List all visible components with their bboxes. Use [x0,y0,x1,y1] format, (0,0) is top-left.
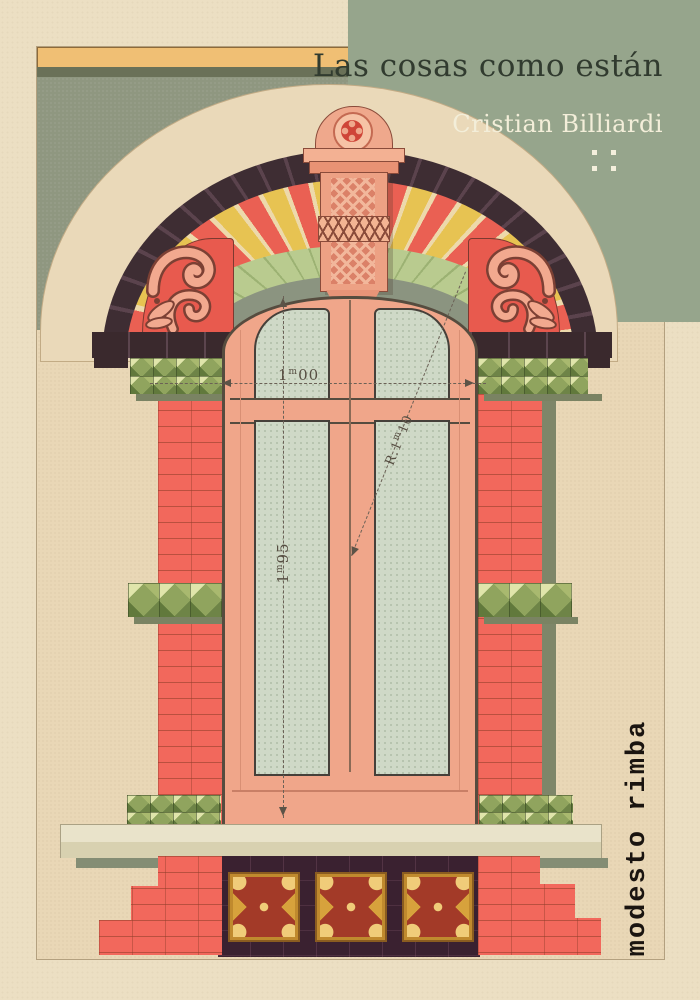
colophon-dot [611,166,616,171]
colophon-dots-icon [592,150,616,171]
book-title: Las cosas como están [313,48,663,84]
pyramid-band-upper-left-shadow [136,394,228,401]
dimension-height-arrow-bottom [279,807,287,816]
scroll-ornament-icon [143,239,233,333]
pyramid-band-mid-left [128,583,222,617]
brick-column-right [478,394,542,856]
pyramid-band-mid-right [478,583,572,617]
colophon-dot [592,166,597,171]
colophon-dot [611,150,616,155]
gold-tile-2 [315,872,387,942]
gold-tile-3 [402,872,474,942]
dim-height-unit: m [275,564,285,574]
dim-height-value: 1 [274,573,292,584]
sill-top [60,824,602,844]
dimension-height-label: 1m95 [274,542,292,583]
window-glass-upper-left [254,308,330,402]
spandrel-left [142,238,234,334]
window-meeting-stile [349,300,351,772]
dim-height-decimals: 95 [274,542,292,563]
dimension-height-arrow-top [279,298,287,307]
window-glass-upper-right [374,308,450,402]
dimension-width-label: 1m00 [278,366,319,384]
colophon-dot [592,150,597,155]
window-jamb-groove-right [459,330,460,790]
author-name: Cristian Billiardi [313,110,663,138]
gold-tile-1 [228,872,300,942]
cover-text-block: Las cosas como están Cristian Billiardi [313,48,663,138]
pyramid-band-mid-right-shadow [484,617,578,624]
pyramid-band-upper-left [130,358,222,394]
brick-column-right-shadow [542,394,556,856]
impost-bracket-left [94,356,128,368]
scroll-ornament-icon [469,239,559,333]
window-glass-lower-right [374,420,450,776]
book-cover: 1m00 1m95 R.1m10 Las cosas como están Cr… [0,0,700,1000]
keystone-cross-band [318,216,390,242]
pyramid-band-mid-left-shadow [134,617,228,624]
pyramid-band-upper-right-shadow [484,394,602,401]
pyramid-band-upper-right [478,358,588,394]
window-glass-lower-left [254,420,330,776]
publisher-name: modesto rimba [622,718,654,958]
dim-width-unit: m [289,367,299,377]
spandrel-right [468,238,560,334]
dim-width-decimals: 00 [298,366,319,384]
brick-column-left [158,394,222,856]
window-jamb-groove-left [240,330,241,790]
dimension-width-arrow-right [465,379,474,387]
window-bottom-rail-line [232,790,468,792]
dimension-width-arrow-left [222,379,231,387]
